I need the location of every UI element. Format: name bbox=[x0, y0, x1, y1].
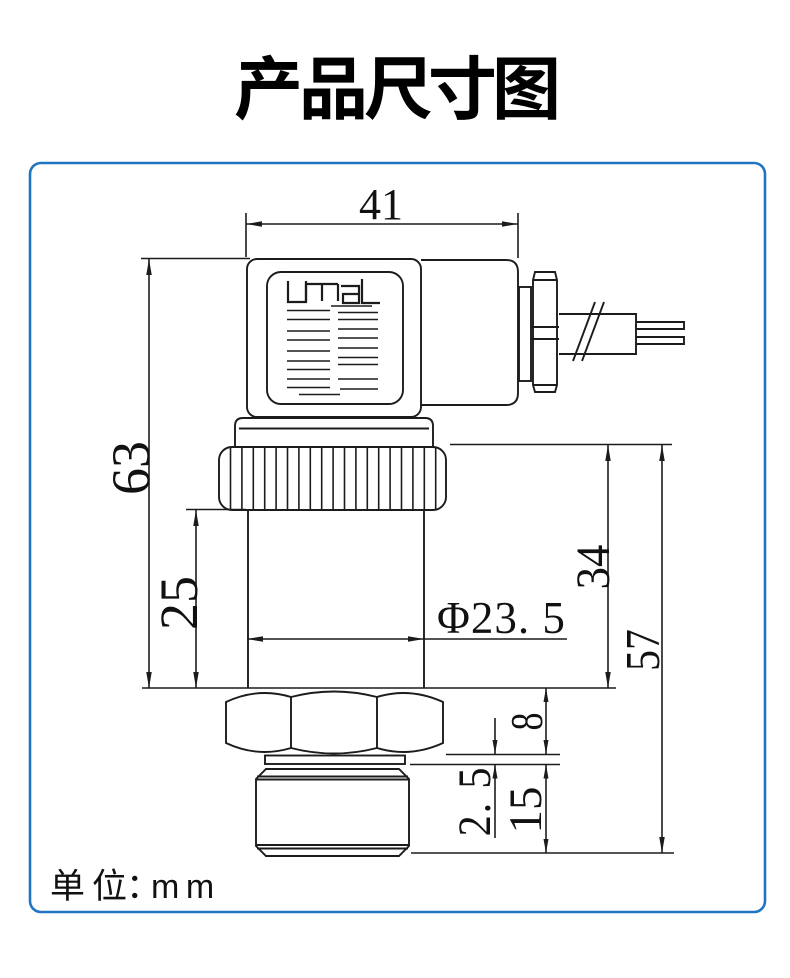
svg-text:34: 34 bbox=[568, 545, 621, 590]
svg-text:Φ23. 5: Φ23. 5 bbox=[437, 593, 566, 643]
svg-text:57: 57 bbox=[615, 629, 670, 671]
svg-text:63: 63 bbox=[101, 441, 161, 495]
svg-text:2. 5: 2. 5 bbox=[448, 766, 501, 837]
svg-text:mm: mm bbox=[151, 868, 221, 906]
svg-text:25: 25 bbox=[149, 576, 209, 630]
svg-text:15: 15 bbox=[500, 787, 552, 834]
svg-text:8: 8 bbox=[502, 712, 552, 730]
svg-text:41: 41 bbox=[359, 180, 403, 229]
